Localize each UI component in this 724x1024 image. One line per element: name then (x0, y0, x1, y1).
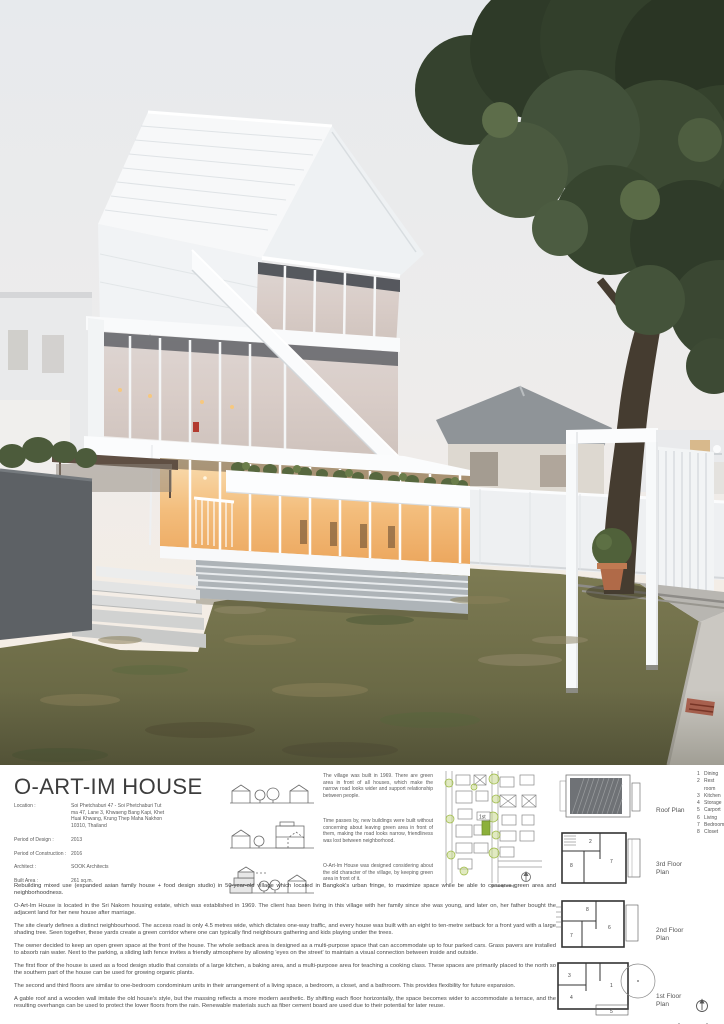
info-row-construction: Period of Construction : 2016 (14, 851, 174, 858)
first-floor-plan-drawing: 1 3 4 5 (556, 955, 660, 1024)
paragraph: The second and third floors are similar … (14, 983, 556, 990)
info-row-design: Period of Design : 2013 (14, 837, 174, 844)
legend-item: 4Storage (697, 800, 724, 807)
presentation-board: O-ART-IM HOUSE Location : Soi Phetchabur… (0, 0, 724, 1024)
svg-text:6: 6 (608, 925, 611, 931)
third-floor-plan-label: 3rd Floor Plan (656, 861, 686, 878)
project-site-marker (482, 821, 490, 835)
first-floor-plan-label: 1st Floor Plan (656, 993, 686, 1010)
photo-vignette (0, 690, 724, 765)
info-row-location: Location : Soi Phetchaburi 47 - Soi Phet… (14, 803, 174, 829)
village-1969-diagram (228, 773, 316, 809)
siteplan-north-arrow-icon (522, 871, 531, 882)
paragraph: Rebuilding mixed use (expanded asian fam… (14, 883, 556, 897)
legend-item: 5Carport (697, 807, 724, 814)
site-plan-drawing: 1st (434, 769, 545, 889)
site-plan: 1st (434, 769, 545, 894)
legend-item: 6Living (697, 815, 724, 822)
svg-text:8: 8 (570, 863, 573, 869)
paragraph: The owner decided to keep an open green … (14, 943, 556, 957)
house-photo (0, 0, 724, 765)
svg-text:7: 7 (610, 859, 613, 865)
svg-text:7: 7 (570, 933, 573, 939)
legend-item: 8Closet (697, 829, 724, 836)
new-buildings-diagram (228, 818, 316, 854)
roof-plan-label: Roof Plan (656, 807, 686, 815)
page-title: O-ART-IM HOUSE (14, 774, 203, 800)
svg-text:8: 8 (586, 907, 589, 913)
legend-item: 7Bedroom (697, 822, 724, 829)
paragraph: The first floor of the house is used as … (14, 963, 556, 977)
svg-text:2: 2 (589, 839, 592, 845)
north-arrow-icon (694, 997, 710, 1018)
room-legend: 1Dining 2Rest room 3Kitchen 4Storage 5Ca… (697, 771, 724, 836)
svg-text:3: 3 (568, 973, 571, 979)
second-floor-plan-drawing: 6 7 8 (556, 899, 646, 958)
concept-row-2: Time passes by, new buildings were built… (228, 818, 434, 854)
site-label: 1st (479, 815, 486, 821)
paragraph: The site clearly defines a distinct neig… (14, 923, 556, 937)
project-info-board: O-ART-IM HOUSE Location : Soi Phetchabur… (0, 765, 724, 1024)
svg-text:4: 4 (570, 995, 573, 1001)
concept-row-1: The village was built in 1969. There are… (228, 773, 434, 809)
info-row-architect: Architect : SOOK Architects (14, 864, 174, 871)
legend-item: 2Rest room (697, 778, 724, 793)
photo-scene (0, 0, 724, 765)
third-floor-plan-drawing: 7 8 2 (556, 831, 646, 894)
legend-item: 3Kitchen (697, 793, 724, 800)
roof-plan-drawing (558, 773, 642, 826)
project-info-table: Location : Soi Phetchaburi 47 - Soi Phet… (14, 803, 174, 891)
legend-item: 1Dining (697, 771, 724, 778)
description-text: Rebuilding mixed use (expanded asian fam… (14, 883, 556, 1016)
svg-text:5: 5 (610, 1009, 613, 1015)
paragraph: A gable roof and a wooden wall imitate t… (14, 996, 556, 1010)
svg-text:1: 1 (610, 983, 613, 989)
floor-plans-column: 1Dining 2Rest room 3Kitchen 4Storage 5Ca… (556, 765, 724, 1024)
scale-bar (678, 1017, 710, 1024)
paragraph: O-Art-Im House is located in the Sri Nak… (14, 903, 556, 917)
second-floor-plan-label: 2nd Floor Plan (656, 927, 686, 944)
